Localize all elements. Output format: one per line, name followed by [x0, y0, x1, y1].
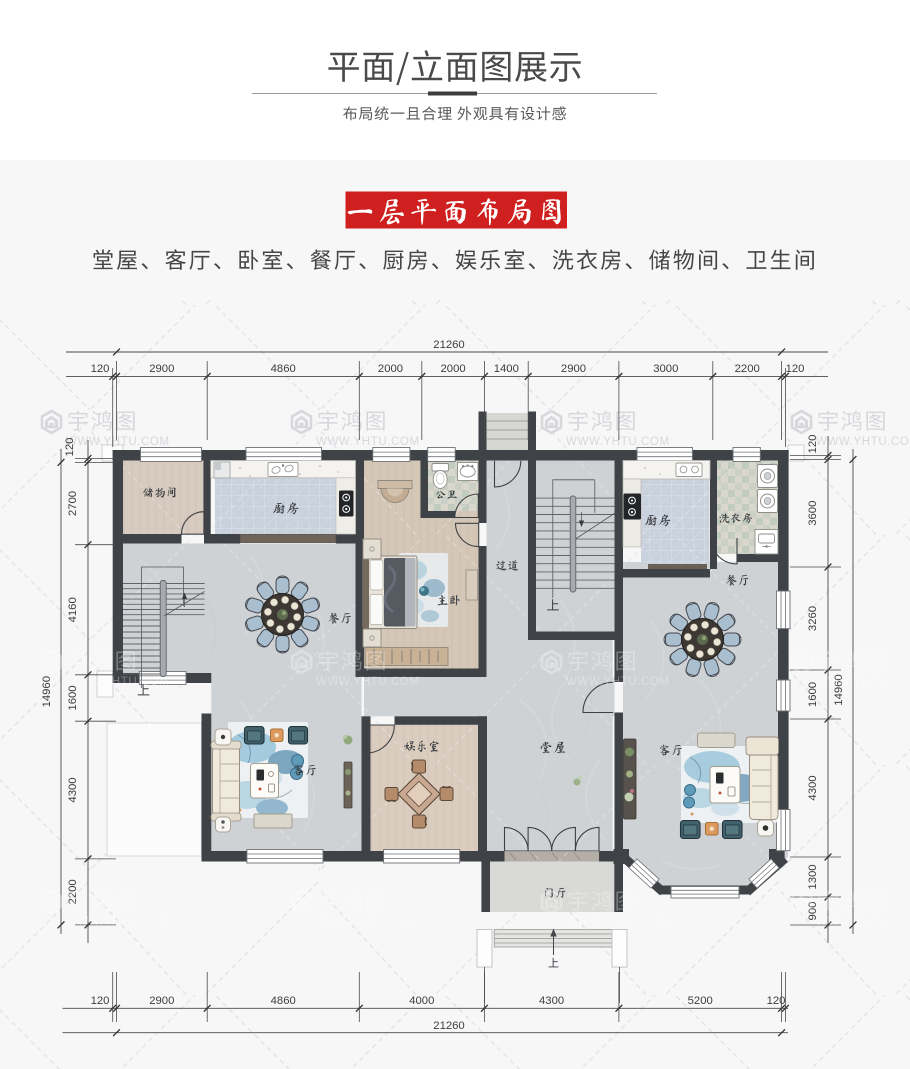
- svg-text:5200: 5200: [688, 995, 713, 1007]
- svg-text:2000: 2000: [441, 363, 466, 375]
- svg-text:4300: 4300: [807, 775, 819, 800]
- svg-text:WWW.YHTU.COM: WWW.YHTU.COM: [566, 436, 670, 448]
- svg-text:21260: 21260: [433, 339, 464, 351]
- svg-text:WWW.YHTU.COM: WWW.YHTU.COM: [66, 916, 170, 928]
- svg-text:4300: 4300: [67, 777, 79, 802]
- svg-text:120: 120: [786, 363, 805, 375]
- svg-text:1400: 1400: [494, 363, 519, 375]
- svg-text:4860: 4860: [271, 363, 296, 375]
- svg-text:WWW.YHTU.COM: WWW.YHTU.COM: [566, 676, 670, 688]
- svg-text:2000: 2000: [378, 363, 403, 375]
- svg-text:1600: 1600: [67, 685, 79, 710]
- svg-text:2900: 2900: [561, 363, 586, 375]
- svg-text:3600: 3600: [807, 501, 819, 526]
- svg-text:3260: 3260: [807, 606, 819, 631]
- svg-text:120: 120: [767, 995, 786, 1007]
- svg-text:2900: 2900: [149, 995, 174, 1007]
- svg-text:120: 120: [91, 995, 110, 1007]
- svg-text:21260: 21260: [433, 1020, 464, 1032]
- svg-text:14960: 14960: [41, 676, 53, 707]
- svg-text:WWW.YHTU.COM: WWW.YHTU.COM: [316, 676, 420, 688]
- svg-text:WWW.YHTU.COM: WWW.YHTU.COM: [816, 676, 910, 688]
- svg-text:120: 120: [64, 438, 76, 457]
- svg-text:WWW.YHTU.COM: WWW.YHTU.COM: [566, 916, 670, 928]
- svg-text:1300: 1300: [807, 864, 819, 889]
- svg-text:120: 120: [807, 435, 819, 454]
- svg-text:WWW.YHTU.COM: WWW.YHTU.COM: [816, 916, 910, 928]
- svg-text:4300: 4300: [539, 995, 564, 1007]
- svg-text:WWW.YHTU.COM: WWW.YHTU.COM: [316, 436, 420, 448]
- svg-text:WWW.YHTU.COM: WWW.YHTU.COM: [66, 676, 170, 688]
- svg-text:4860: 4860: [271, 995, 296, 1007]
- svg-text:2900: 2900: [149, 363, 174, 375]
- svg-text:WWW.YHTU.COM: WWW.YHTU.COM: [316, 916, 420, 928]
- svg-text:2200: 2200: [735, 363, 760, 375]
- svg-text:2700: 2700: [67, 491, 79, 516]
- svg-text:3000: 3000: [653, 363, 678, 375]
- svg-text:4000: 4000: [409, 995, 434, 1007]
- svg-text:WWW.YHTU.COM: WWW.YHTU.COM: [816, 436, 910, 448]
- svg-text:120: 120: [91, 363, 110, 375]
- svg-text:4160: 4160: [67, 597, 79, 622]
